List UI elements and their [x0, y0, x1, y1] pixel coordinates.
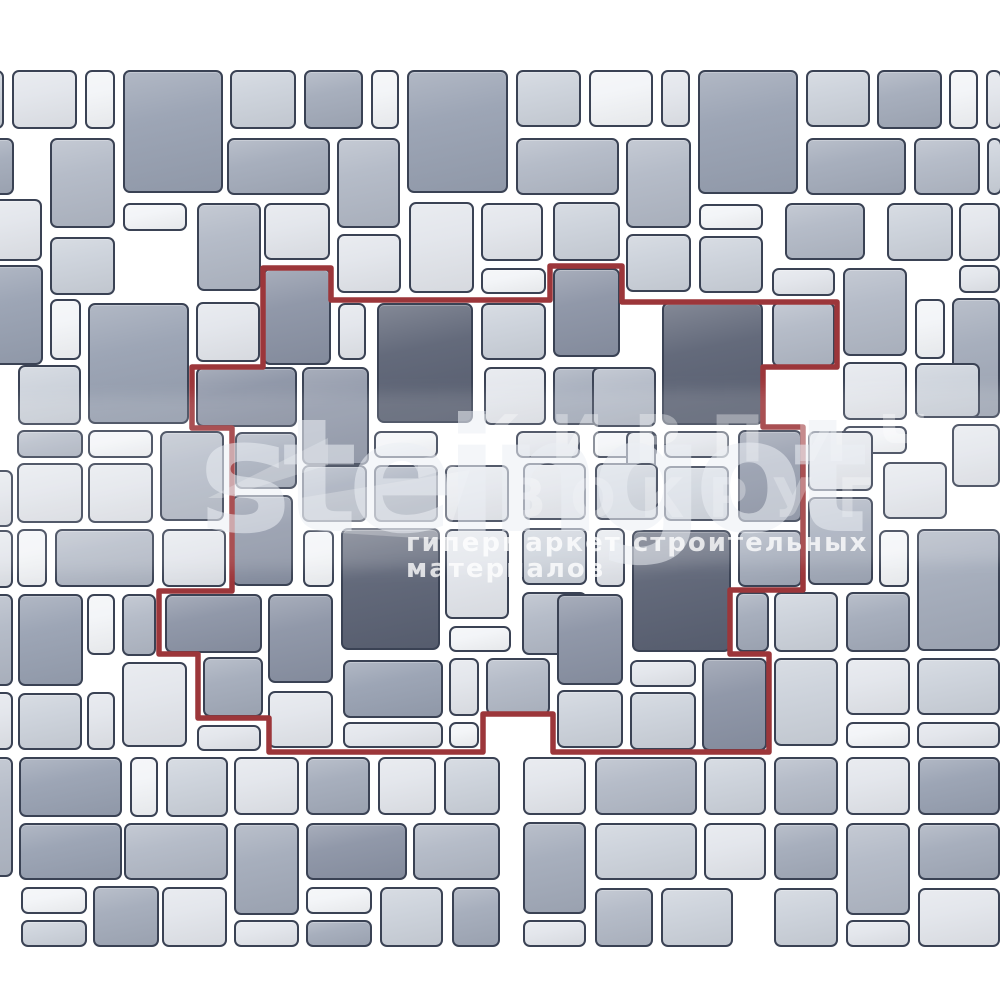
paver-tile — [449, 722, 479, 748]
paver-tile — [197, 203, 261, 291]
paver-tile — [523, 463, 586, 520]
paver-tile — [306, 823, 407, 880]
paver-tile — [234, 823, 299, 915]
paver-tile — [413, 823, 500, 880]
paver-tile — [595, 528, 625, 587]
paver-tile — [553, 202, 620, 261]
paver-tile — [917, 658, 1000, 715]
paver-tile — [959, 265, 1000, 293]
paver-tile — [166, 757, 228, 817]
paver-tile — [302, 367, 369, 465]
paver-tile — [122, 594, 156, 656]
paver-tile — [374, 431, 438, 458]
paver-tile — [124, 823, 228, 880]
paver-tile — [914, 138, 980, 195]
paver-tile — [664, 466, 729, 521]
paver-tile — [445, 529, 509, 619]
paver-tile — [915, 299, 945, 359]
paver-tile — [595, 463, 658, 520]
paver-tile — [234, 757, 299, 815]
paver-tile — [557, 594, 623, 685]
paver-tile — [374, 465, 438, 522]
paver-tile — [774, 757, 838, 815]
paver-tile — [196, 367, 297, 427]
paver-tile — [19, 823, 122, 880]
paver-tile — [85, 70, 115, 129]
paver-tile — [343, 660, 443, 718]
paver-tile — [879, 530, 909, 587]
paver-tile — [232, 495, 293, 586]
paver-tile — [808, 431, 873, 491]
paver-tile — [632, 530, 731, 652]
paver-tile — [661, 888, 733, 947]
paver-tile — [595, 888, 653, 947]
paver-tile — [55, 529, 154, 587]
paver-tile — [0, 199, 42, 261]
paver-tile — [917, 529, 1000, 651]
paver-tile — [449, 626, 511, 652]
paver-tile — [371, 70, 399, 129]
paver-tile — [846, 757, 910, 815]
paver-tile — [227, 138, 330, 195]
paver-tile — [523, 757, 586, 815]
paver-tile — [887, 203, 953, 261]
paver-tile — [449, 658, 479, 716]
paver-tile — [306, 757, 370, 815]
paver-tile — [516, 431, 580, 458]
paver-tile — [704, 823, 766, 880]
paver-tile — [952, 424, 1000, 487]
paver-tile — [806, 138, 906, 195]
paver-tile — [959, 203, 1000, 261]
paver-tile — [380, 887, 443, 947]
paver-tile — [877, 70, 942, 129]
paver-tile — [589, 70, 653, 127]
paver-tile — [93, 886, 159, 947]
paver-tile — [234, 920, 299, 947]
paver-tile — [481, 303, 546, 360]
paver-tile — [88, 303, 189, 424]
paver-tile — [772, 302, 835, 367]
paver-tile — [196, 302, 260, 362]
paver-tile — [197, 725, 261, 751]
paver-tile — [595, 757, 697, 815]
paver-tile — [338, 303, 366, 360]
paver-tile — [162, 887, 227, 947]
paver-tile — [846, 658, 910, 715]
paver-tile — [785, 203, 865, 260]
paver-tile — [523, 822, 586, 914]
paver-tile — [130, 757, 158, 817]
paver-tile — [18, 594, 83, 686]
paver-tile — [337, 234, 401, 293]
paver-tile — [846, 722, 910, 748]
paver-tile — [846, 592, 910, 652]
paver-tile — [0, 138, 14, 195]
paver-tile — [87, 692, 115, 750]
paver-tile — [377, 303, 473, 423]
paver-tile — [699, 236, 763, 293]
paver-tile — [122, 662, 187, 747]
paver-tile — [21, 887, 87, 914]
paver-tile — [774, 888, 838, 947]
paver-tile — [774, 592, 838, 652]
paver-tile — [50, 237, 115, 295]
paver-tile — [0, 692, 13, 750]
paver-tile — [949, 70, 978, 129]
paver-tile — [268, 691, 333, 748]
paver-tile — [918, 823, 1000, 880]
paver-tile — [264, 203, 330, 260]
paver-tile — [230, 70, 296, 129]
paver-tile — [123, 203, 187, 231]
paver-tile — [626, 234, 691, 292]
paver-tile — [698, 70, 798, 194]
paver-tile — [407, 70, 508, 193]
paver-tile — [522, 528, 587, 585]
paver-tile — [592, 367, 656, 427]
paver-tile — [18, 365, 81, 425]
paver-tile — [806, 70, 870, 127]
paver-tile — [987, 138, 1000, 195]
paver-tile — [343, 722, 443, 748]
paver-tile — [846, 920, 910, 947]
paver-tile — [595, 823, 697, 880]
paver-tile — [337, 138, 400, 228]
paver-tile — [918, 888, 1000, 947]
paver-tile — [160, 431, 224, 521]
paver-tile — [915, 363, 980, 418]
paver-tile — [50, 299, 81, 360]
paver-tile — [738, 530, 802, 587]
paver-tile — [630, 660, 696, 687]
paver-tile — [626, 138, 691, 228]
paver-tile — [484, 367, 546, 425]
paver-tile — [481, 203, 543, 261]
paver-tile — [883, 462, 947, 519]
paver-tile — [304, 70, 363, 129]
paver-tile — [0, 70, 4, 129]
paver-tile — [17, 430, 83, 458]
paver-tile — [302, 465, 367, 522]
paver-tile — [662, 302, 763, 425]
paver-tile — [917, 722, 1000, 748]
paver-tile — [50, 138, 115, 228]
paver-tile — [986, 70, 1000, 129]
paver-tile — [523, 920, 586, 947]
paver-tile — [268, 594, 333, 683]
paver-tile — [12, 70, 77, 129]
paver-tile — [846, 823, 910, 915]
paver-tile — [557, 690, 623, 748]
paver-tile — [702, 658, 767, 751]
paver-tile — [736, 592, 769, 652]
paver-tile — [481, 268, 546, 294]
paver-tile — [88, 463, 153, 523]
paver-tile — [516, 70, 581, 127]
paver-tile — [452, 887, 500, 947]
paver-tile — [18, 693, 82, 750]
paver-tile — [843, 362, 907, 420]
paver-tile — [378, 757, 436, 815]
paver-tile — [661, 70, 690, 127]
paver-tile — [738, 430, 802, 522]
paver-tile — [123, 70, 223, 193]
paver-tile — [664, 431, 729, 458]
paver-tile — [0, 470, 13, 527]
paver-tile — [263, 268, 331, 365]
paver-tile — [306, 887, 372, 914]
paver-tile — [409, 202, 474, 293]
paver-tile — [203, 657, 263, 717]
paver-tile — [445, 465, 509, 522]
paver-tile — [772, 268, 835, 296]
tile-layer — [0, 0, 1000, 947]
paver-tile — [444, 757, 500, 815]
paving-pattern-canvas: КИРПИЧ ВОКРУГ steingot гипермаркет строи… — [0, 0, 1000, 1000]
paver-tile — [87, 594, 115, 655]
paver-tile — [165, 594, 262, 653]
paver-tile — [486, 658, 550, 715]
paver-tile — [21, 920, 87, 947]
paver-tile — [516, 138, 619, 195]
paver-tile — [306, 920, 372, 947]
paver-tile — [17, 529, 47, 587]
paver-tile — [553, 268, 620, 357]
paver-tile — [774, 658, 838, 746]
paver-tile — [0, 594, 13, 686]
paver-tile — [17, 463, 83, 523]
paver-tile — [19, 757, 122, 817]
paver-tile — [699, 204, 763, 230]
paver-tile — [88, 430, 153, 458]
paver-tile — [0, 530, 13, 588]
paver-tile — [0, 265, 43, 365]
paver-tile — [162, 529, 226, 587]
paver-tile — [843, 268, 907, 356]
paver-tile — [235, 432, 297, 489]
paver-tile — [808, 497, 873, 585]
paver-tile — [0, 757, 13, 877]
paver-tile — [704, 757, 766, 815]
paver-tile — [774, 823, 838, 880]
paver-tile — [630, 692, 696, 750]
paver-tile — [303, 530, 334, 587]
paver-tile — [918, 757, 1000, 815]
paver-tile — [341, 528, 440, 650]
